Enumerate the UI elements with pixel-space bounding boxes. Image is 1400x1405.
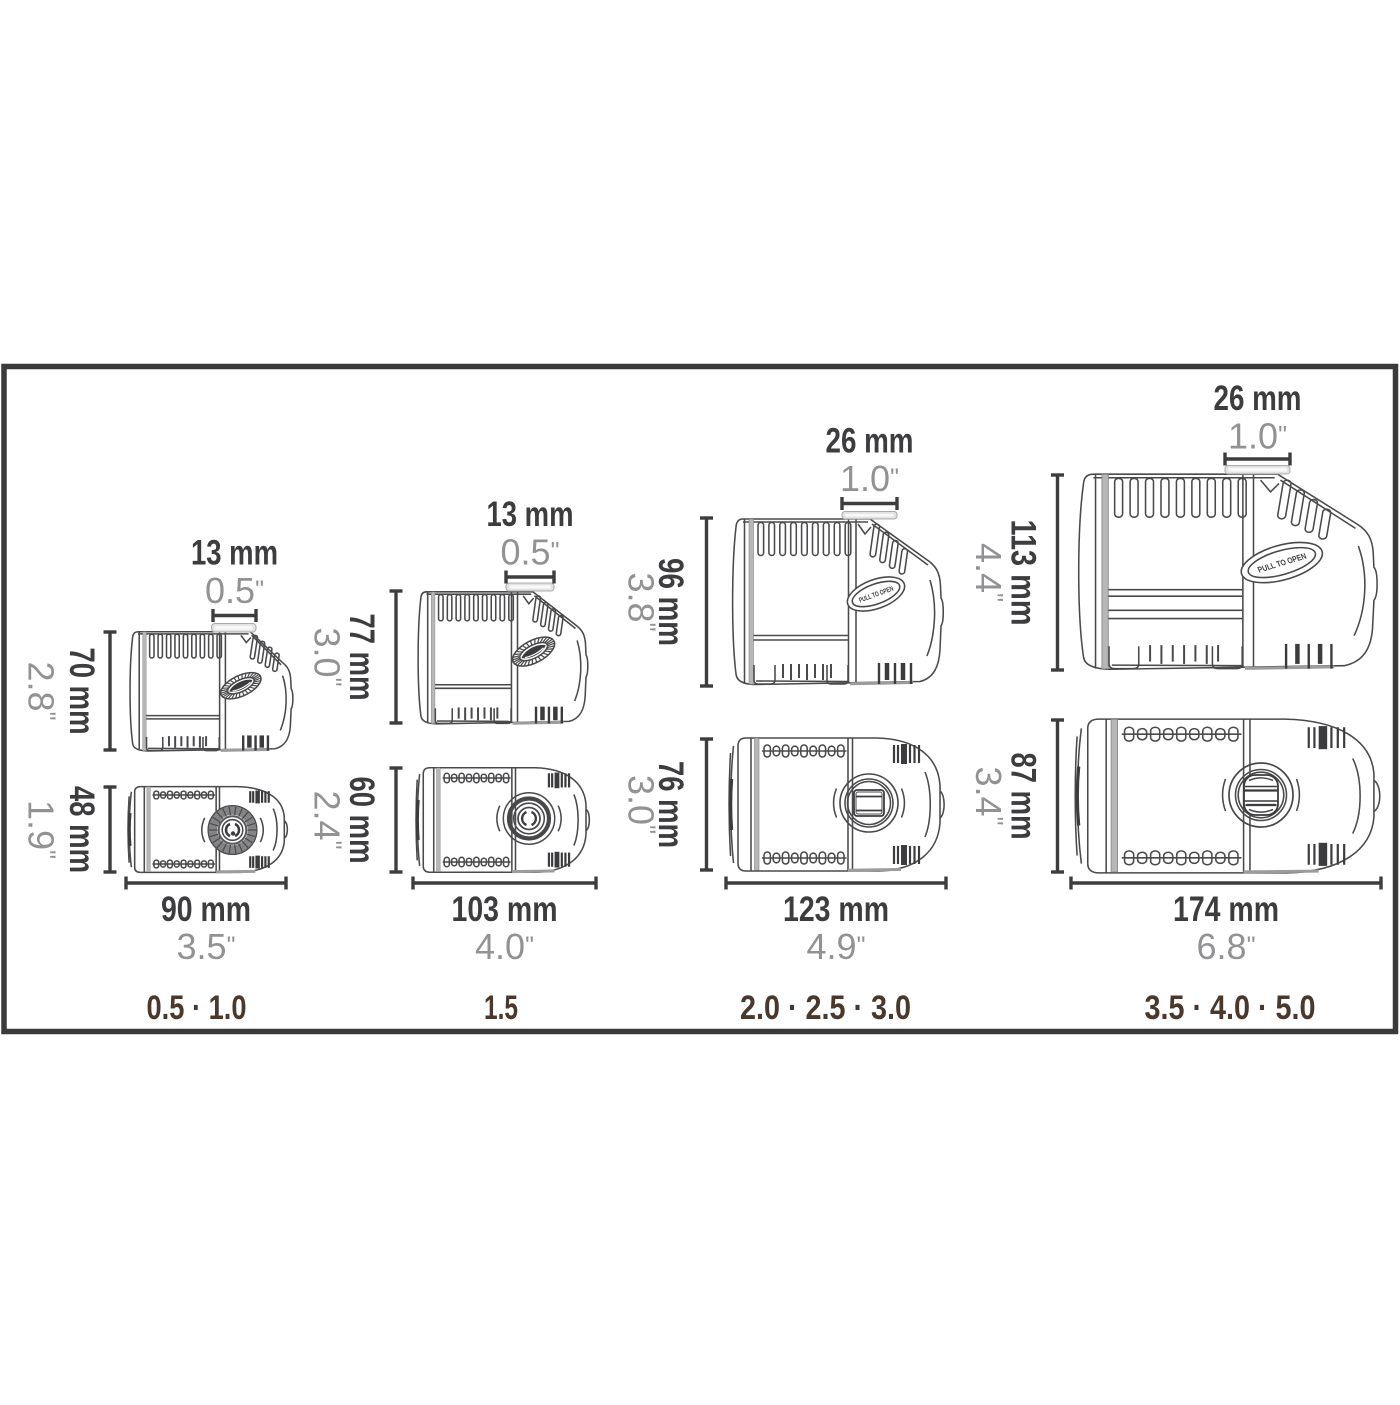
svg-text:13 mm: 13 mm bbox=[487, 494, 574, 534]
svg-text:123 mm: 123 mm bbox=[783, 889, 889, 929]
svg-text:48 mm: 48 mm bbox=[62, 786, 102, 873]
svg-text:2.0 · 2.5 · 3.0: 2.0 · 2.5 · 3.0 bbox=[740, 989, 911, 1027]
svg-text:103 mm: 103 mm bbox=[452, 889, 558, 929]
svg-text:26 mm: 26 mm bbox=[1214, 378, 1302, 418]
svg-text:90 mm: 90 mm bbox=[161, 889, 251, 929]
svg-text:70 mm: 70 mm bbox=[62, 648, 102, 735]
svg-text:174 mm: 174 mm bbox=[1173, 889, 1279, 929]
svg-text:1.5: 1.5 bbox=[484, 989, 518, 1027]
svg-text:13 mm: 13 mm bbox=[191, 533, 278, 573]
svg-text:0.5 · 1.0: 0.5 · 1.0 bbox=[147, 989, 247, 1027]
svg-text:3.5 · 4.0 · 5.0: 3.5 · 4.0 · 5.0 bbox=[1145, 989, 1316, 1027]
svg-text:26 mm: 26 mm bbox=[826, 421, 914, 461]
